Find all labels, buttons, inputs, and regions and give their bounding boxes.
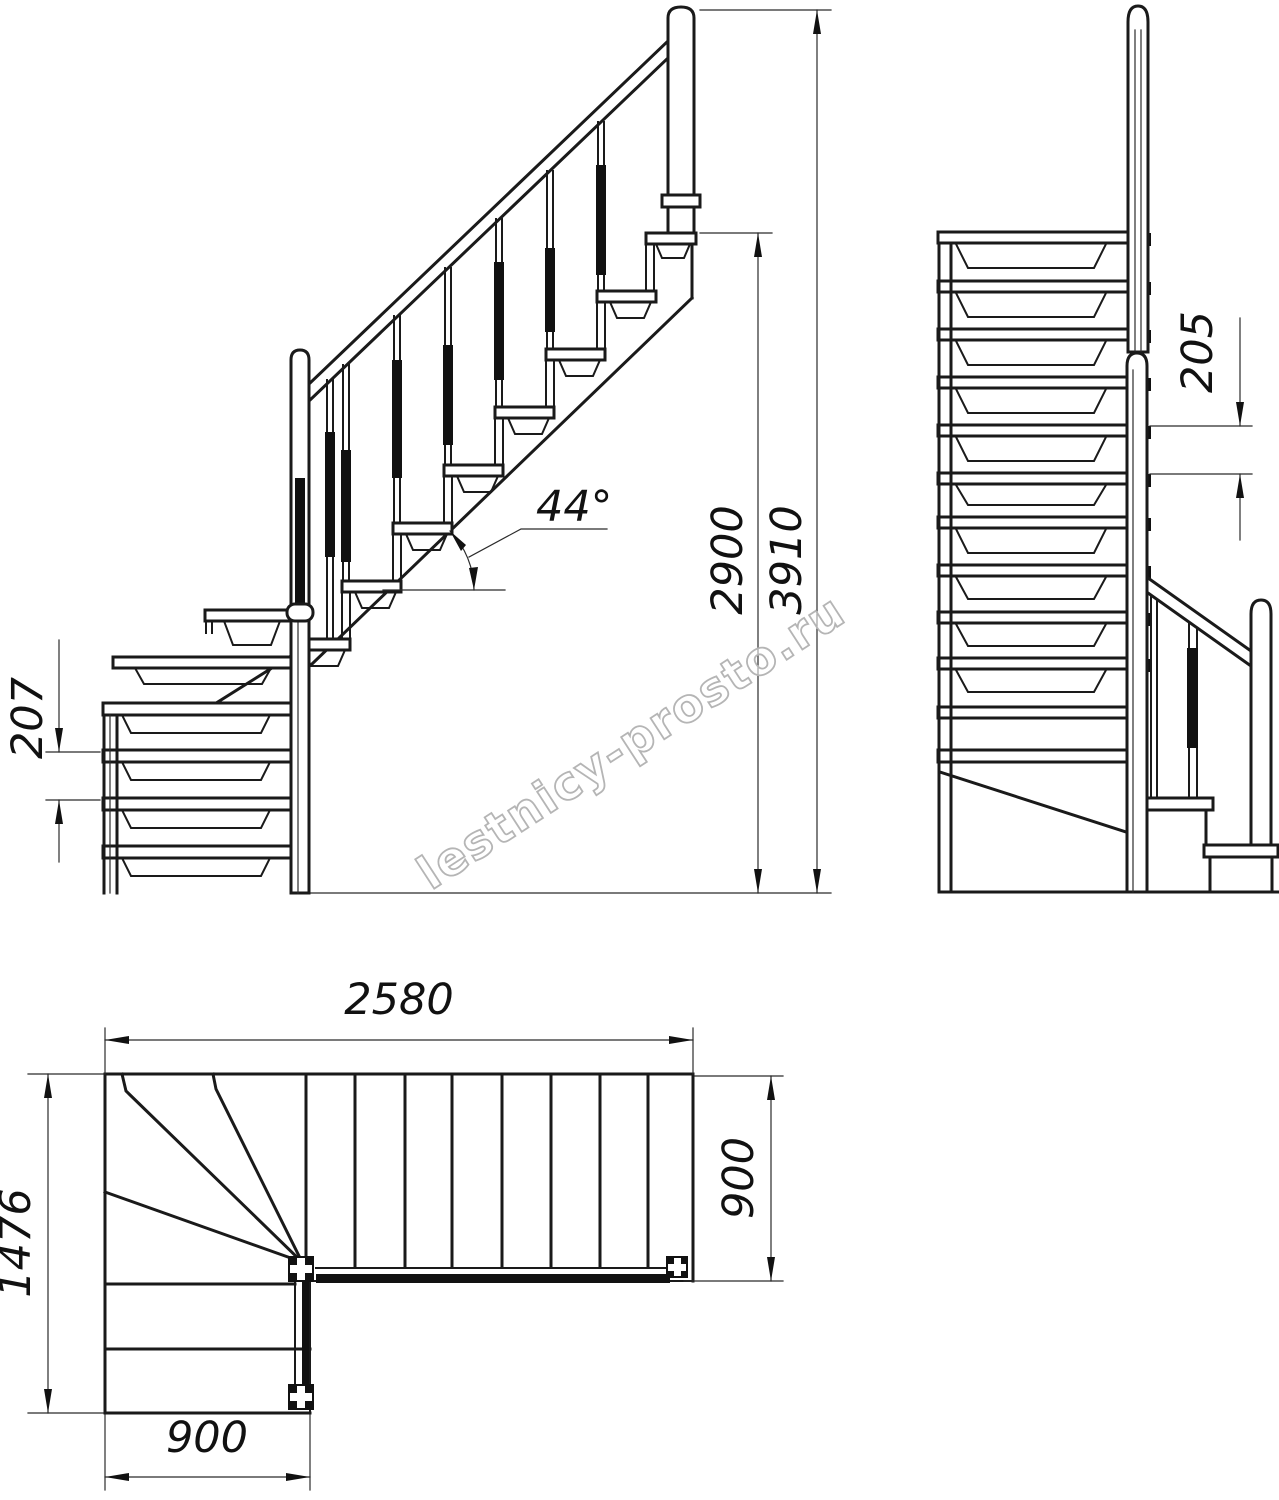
dim-label-205: 205 xyxy=(1173,311,1223,393)
angle-annotation: 44° xyxy=(383,482,612,590)
plan-view: 2580 1476 900 900 xyxy=(0,975,783,1490)
newel-marker-bottom xyxy=(288,1384,314,1410)
lower-flight-steps xyxy=(103,703,293,893)
front-elevation-view: 205 xyxy=(938,6,1278,892)
dim-label-900-right: 900 xyxy=(714,1137,764,1219)
upper-flight-treads xyxy=(291,233,696,650)
tread-lines-left-run xyxy=(105,1284,310,1349)
dim-upper-run-width: 900 xyxy=(684,1076,783,1281)
dim-label-44deg: 44° xyxy=(536,482,612,532)
step-stack xyxy=(938,232,1151,892)
dim-step-rise: 205 xyxy=(1150,311,1252,540)
railing-band xyxy=(316,1268,670,1283)
dim-label-2580: 2580 xyxy=(344,975,453,1025)
side-elevation-view: 207 44° 2900 3910 xyxy=(3,7,831,893)
newel-post-tall xyxy=(1128,6,1148,352)
dim-lower-run-width: 900 xyxy=(105,1413,310,1490)
newel-post-right xyxy=(1251,600,1271,845)
dim-label-207: 207 xyxy=(3,677,53,759)
newel-marker-corner xyxy=(288,1256,314,1282)
newel-collar xyxy=(662,195,700,207)
lower-stringer-line xyxy=(940,772,1126,832)
dim-total-depth: 1476 xyxy=(0,1074,103,1413)
dim-upper-run-length: 2580 xyxy=(105,975,693,1074)
newel-post-lower xyxy=(1127,353,1147,892)
dim-label-2900: 2900 xyxy=(703,505,753,614)
lower-railing xyxy=(1148,578,1251,798)
dim-total-height: 3910 xyxy=(700,10,831,893)
railing-left-run xyxy=(295,1282,309,1384)
newel-post-top xyxy=(662,7,700,233)
newel-post-middle xyxy=(287,350,313,893)
stack-tray-bowls xyxy=(956,244,1106,692)
blueprint-canvas: 207 44° 2900 3910 xyxy=(0,0,1279,1500)
staircase-drawing: 207 44° 2900 3910 xyxy=(0,0,1279,1500)
baluster-turned-section xyxy=(1187,648,1198,748)
tread-lines-upper-run xyxy=(306,1074,648,1266)
dim-label-900-bottom: 900 xyxy=(166,1413,248,1463)
watermark-text: lestnicy-prosto.ru xyxy=(408,583,855,900)
newel-marker-right xyxy=(666,1256,688,1278)
balusters xyxy=(325,122,606,639)
dim-lower-rise: 207 xyxy=(3,640,100,862)
dim-label-1476: 1476 xyxy=(0,1188,41,1297)
plan-outline xyxy=(105,1074,693,1413)
handrail xyxy=(309,41,668,401)
winder-fan-lines xyxy=(105,1074,302,1262)
